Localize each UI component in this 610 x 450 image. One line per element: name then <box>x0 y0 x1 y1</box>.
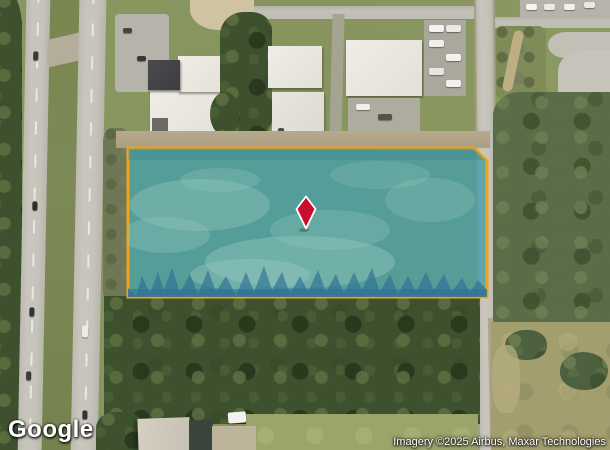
marker-shadow <box>299 228 309 232</box>
imagery-attribution: Imagery ©2025 Airbus, Maxar Technologies <box>393 436 606 448</box>
parcel-overlay <box>0 0 610 450</box>
satellite-map-canvas[interactable]: Google Imagery ©2025 Airbus, Maxar Techn… <box>0 0 610 450</box>
google-logo[interactable]: Google <box>8 416 94 444</box>
